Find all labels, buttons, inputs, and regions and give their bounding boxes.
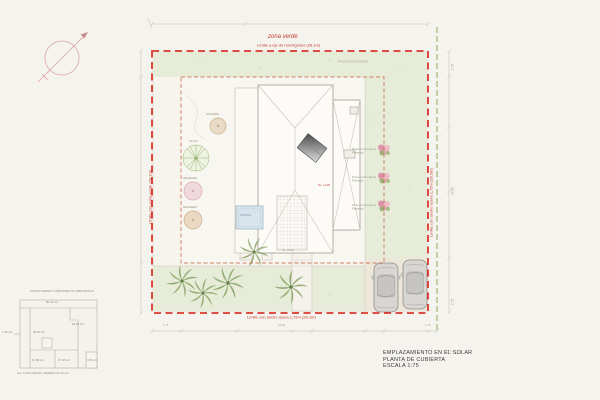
title-line-3: ESCALA 1:75	[383, 363, 472, 370]
pergola-grid	[277, 196, 307, 250]
detail-area-bottom-left: 62.88 m2	[32, 359, 44, 362]
detail-area-bottom-right: 4.80 m2	[87, 359, 97, 362]
tree-label-granado: GRANADO	[183, 177, 197, 180]
limit-top-label: Límite a eje de hormigones (28.1m)	[257, 43, 320, 48]
detail-diagram	[14, 300, 97, 368]
dim-bottom-1: 1.75	[163, 324, 168, 327]
chimney	[350, 107, 358, 114]
tree-label-olivo: OLIVO	[189, 140, 198, 143]
level-label-roof: Nv. +3.05	[318, 184, 330, 187]
tree-noguera	[184, 211, 202, 229]
dim-bottom-3: 1.75	[425, 324, 430, 327]
title-block: EMPLAZAMIENTO EN EL SOLAR PLANTA DE CUBI…	[383, 350, 472, 370]
zona-verde-label: zona verde	[268, 34, 298, 40]
parcela-note: Parcela urbanizadora	[338, 60, 368, 63]
dim-right-3: 1.75	[451, 64, 454, 70]
tree-granado	[184, 182, 202, 200]
detail-title: ZONAS VERDES CUMPLIMIENTO URBANISTICO	[30, 290, 94, 293]
pool	[236, 206, 263, 229]
detail-total: sup. TOTAL ZONAS VERDES 235.16 m2	[17, 372, 68, 375]
title-line-2: PLANTA DE CUBIERTA	[383, 357, 472, 364]
pool-label: PISCINA	[240, 214, 251, 217]
detail-area-bottom-mid: 37.08 m2	[58, 359, 70, 362]
flowering-tree-label: Prunus Con flores Pissardii	[352, 176, 376, 183]
title-line-1: EMPLAZAMIENTO EN EL SOLAR	[383, 350, 472, 357]
detail-area-right: 18.39 m2	[72, 323, 84, 326]
limit-bottom-label: Límite con ancho acera 1,75m (28.1m)	[247, 315, 316, 320]
limit-left-label: Límite con zona verde (28.1m)	[148, 170, 153, 224]
site-plan-svg	[0, 0, 600, 400]
parked-car	[401, 260, 429, 309]
flowering-tree-label: Prunus Con flores Pissardii	[352, 148, 376, 155]
north-arrow	[38, 32, 88, 82]
tree-label-higuera: HIGUERA	[206, 113, 219, 116]
detail-area-left: 48.29 m2	[33, 331, 45, 334]
limit-right-label: Límite con ancho acera 1,75m (28.5m)	[429, 168, 434, 237]
detail-area-top: 80.00 m2	[46, 301, 58, 304]
dim-right-1: 1.75	[451, 299, 454, 305]
dim-right-2: 24.95	[451, 187, 454, 195]
detail-area-left-outside: 7.98 m2	[2, 331, 12, 334]
tree-olivo	[183, 145, 209, 171]
tree-label-noguera: NOGUERA	[183, 206, 197, 209]
flowering-tree-label: Prunus Con flores Pissardii	[352, 204, 376, 211]
dim-bottom-2: 24.60	[278, 324, 285, 327]
site-plan-canvas: zona verde Límite a eje de hormigones (2…	[0, 0, 600, 400]
parked-car	[372, 263, 400, 312]
tree-higuera	[210, 118, 226, 134]
level-label-ground: Nv. ±0.00	[282, 249, 294, 252]
